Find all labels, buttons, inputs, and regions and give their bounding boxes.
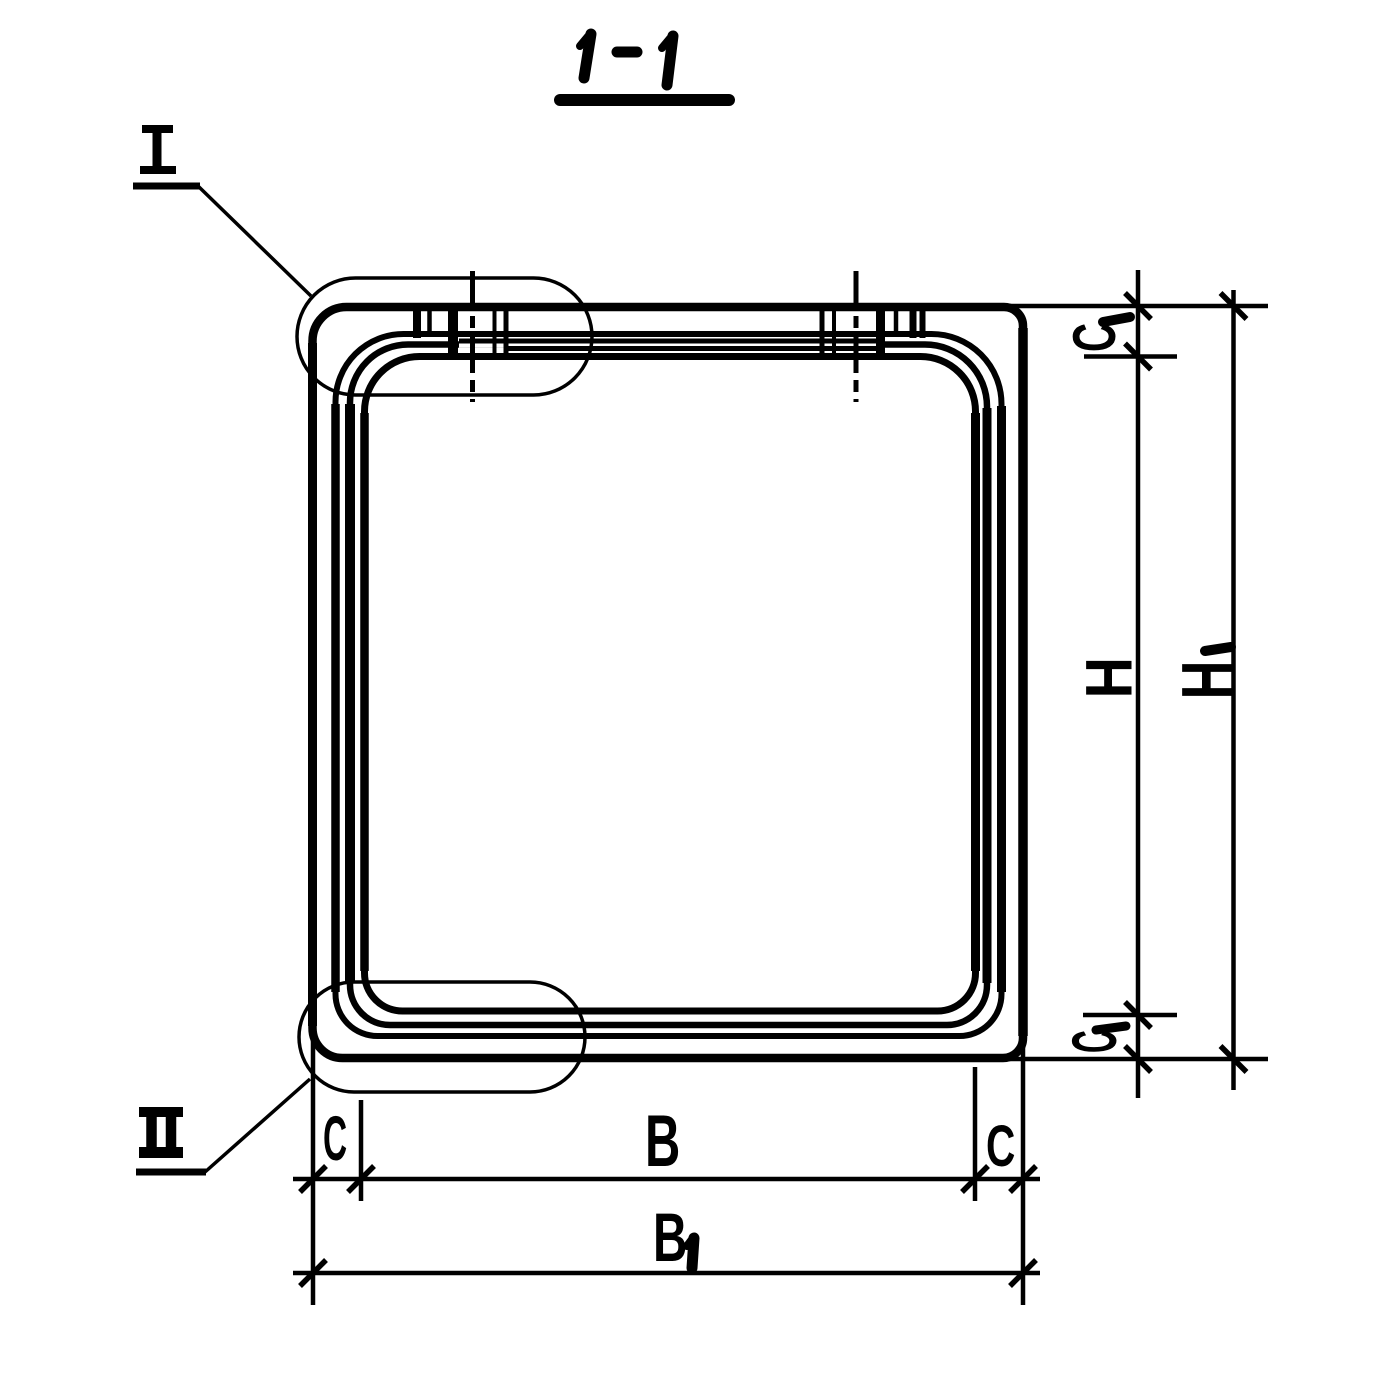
svg-text:H: H bbox=[1073, 657, 1147, 698]
svg-text:C: C bbox=[1061, 323, 1128, 352]
svg-text:B: B bbox=[653, 1198, 687, 1276]
svg-text:C: C bbox=[986, 1114, 1015, 1179]
svg-text:H: H bbox=[1168, 661, 1248, 700]
svg-text:C: C bbox=[323, 1103, 347, 1174]
svg-text:B: B bbox=[645, 1101, 680, 1182]
